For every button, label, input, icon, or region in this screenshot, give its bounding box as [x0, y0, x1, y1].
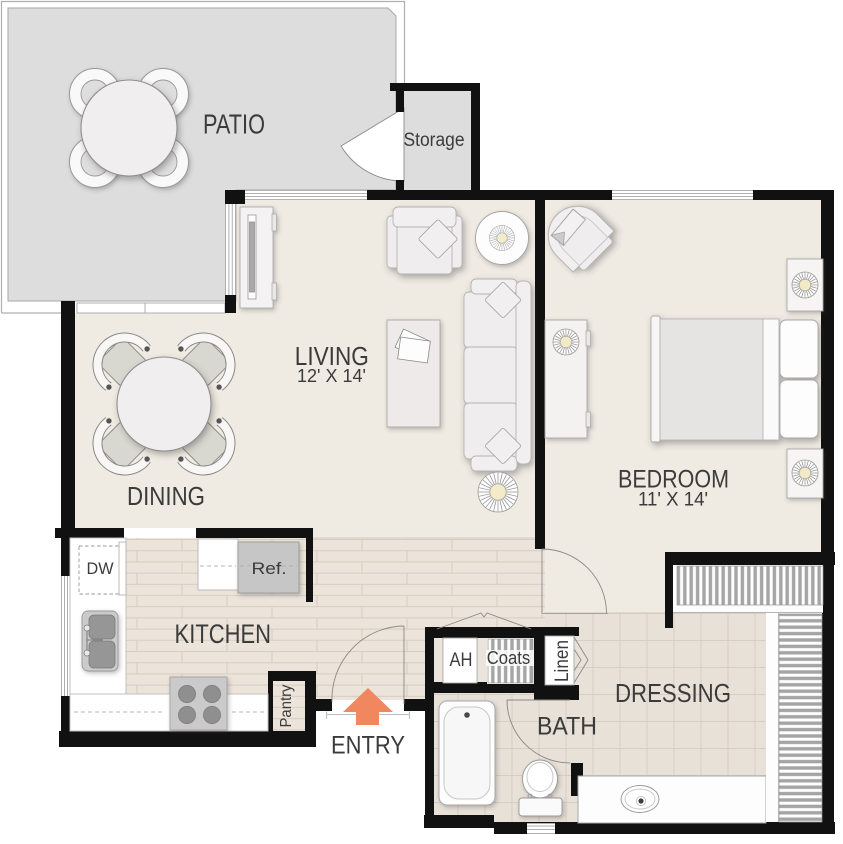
svg-text:Pantry: Pantry — [278, 684, 295, 727]
svg-text:12' X 14': 12' X 14' — [297, 366, 366, 386]
svg-text:DINING: DINING — [127, 481, 205, 511]
svg-text:KITCHEN: KITCHEN — [175, 619, 272, 649]
svg-text:Linen: Linen — [552, 640, 573, 682]
svg-text:Ref.: Ref. — [252, 560, 287, 578]
svg-text:DRESSING: DRESSING — [615, 680, 731, 708]
svg-text:PATIO: PATIO — [203, 109, 265, 140]
svg-text:DW: DW — [87, 559, 114, 578]
svg-text:BATH: BATH — [537, 713, 597, 741]
svg-text:Storage: Storage — [404, 130, 465, 151]
svg-text:Coats: Coats — [487, 648, 531, 668]
svg-text:11' X 14': 11' X 14' — [638, 490, 708, 511]
svg-text:ENTRY: ENTRY — [331, 732, 405, 760]
svg-text:AH: AH — [450, 650, 473, 671]
